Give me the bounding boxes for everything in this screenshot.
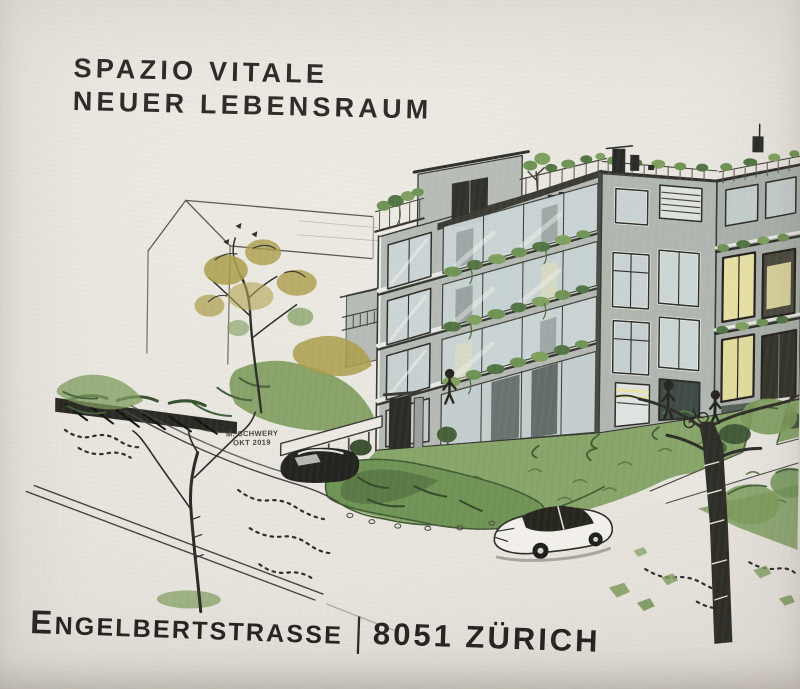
signature-date: OKT 2019: [233, 438, 279, 448]
city-name: 8051 ZÜRICH: [372, 615, 601, 659]
address-separator: |: [354, 610, 365, 655]
street-name: ENGELBERTSTRASSE: [30, 602, 344, 651]
photographed-flyer: SPAZIO VITALE NEUER LEBENSRAUM: [0, 0, 800, 689]
title-block: SPAZIO VITALE NEUER LEBENSRAUM: [72, 52, 433, 127]
parked-car: [280, 447, 359, 483]
artist-signature: M. SCHWERY OKT 2019: [226, 429, 279, 448]
far-right-wing: [712, 149, 800, 419]
